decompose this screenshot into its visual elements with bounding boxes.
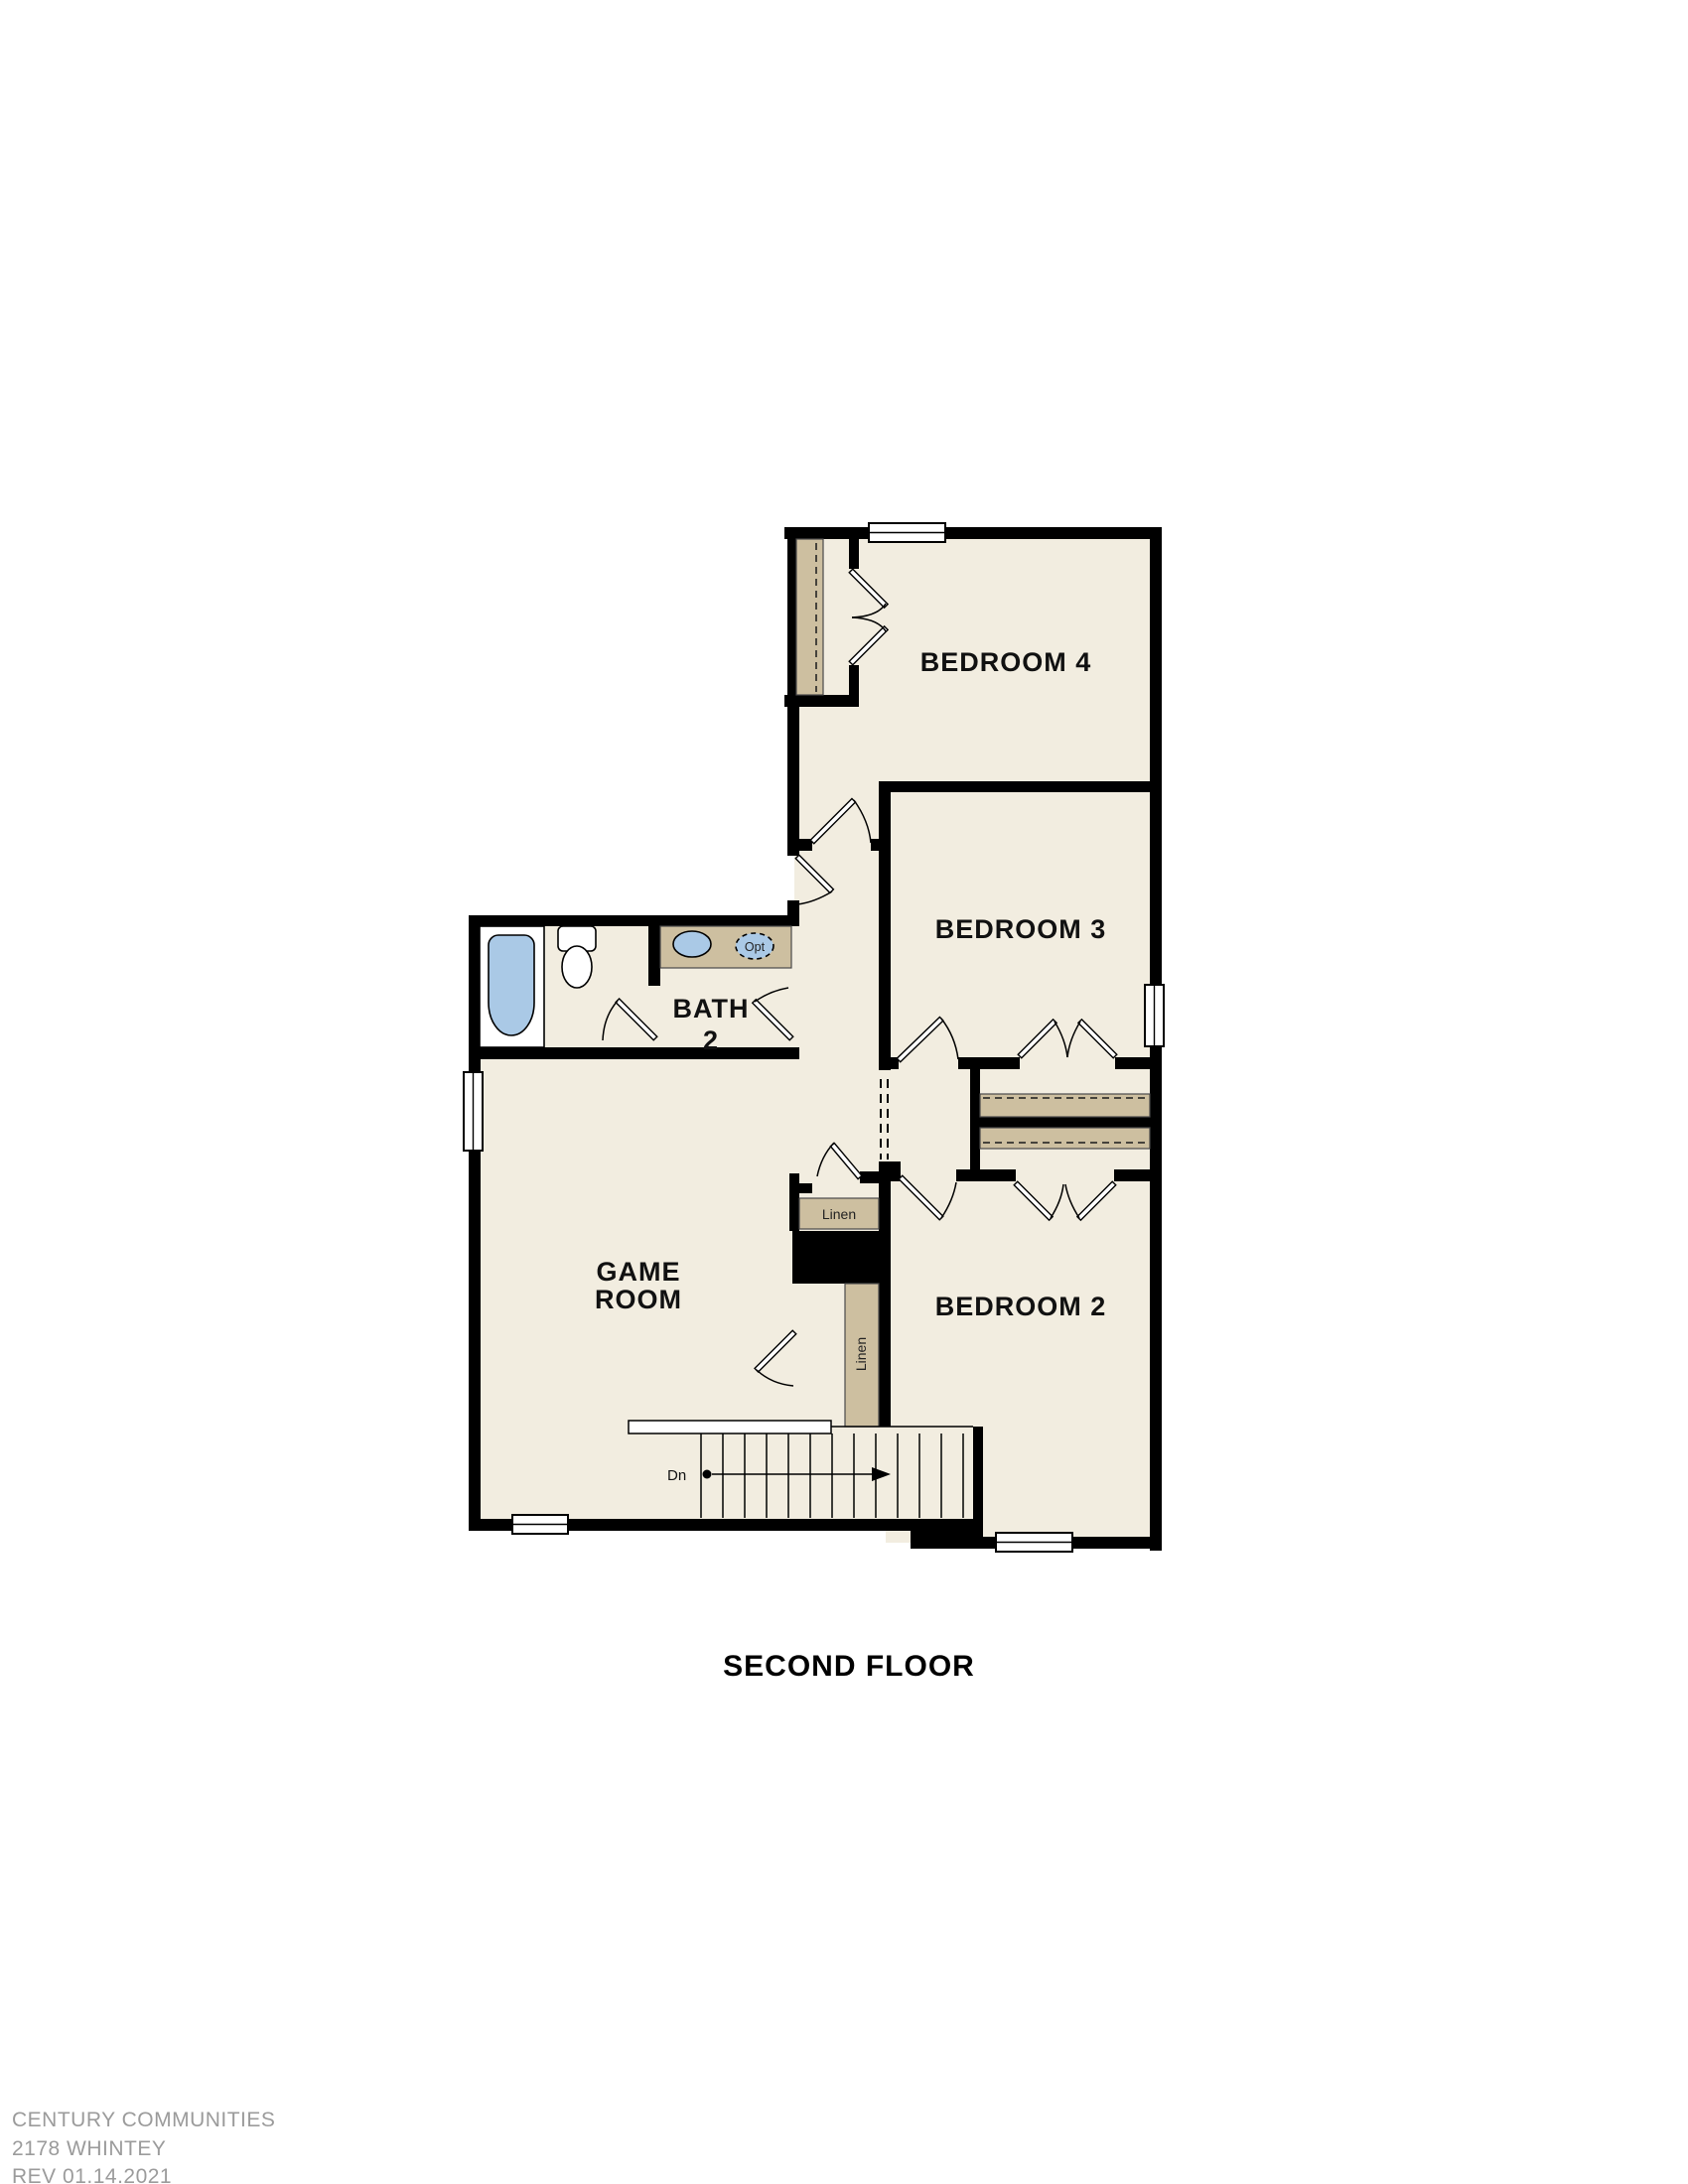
wall-linen-hinge [860,1171,879,1183]
toilet-bowl-icon [562,946,592,988]
stairs-down-label: Dn [667,1467,686,1484]
window-bedroom3-right [1145,985,1164,1046]
wall-bath-bottom [469,1047,799,1059]
closet-rod-bedroom2 [980,1128,1150,1149]
wall-linen-north [799,1183,812,1193]
wall-bath-compartment [648,915,660,986]
wall-bed4closet-stub-top [849,539,859,569]
label-bath2-line2: 2 [703,1025,719,1055]
wall-linen-west [789,1173,799,1231]
footer: CENTURY COMMUNITIES 2178 WHINTEY REV 01.… [12,2109,275,2184]
window-gameroom-bottom [512,1515,568,1534]
closet-rod-bedroom3 [980,1094,1150,1117]
window-bedroom4-top [869,523,945,542]
label-gameroom-line1: GAME [597,1257,681,1287]
label-linen-stair: Linen [853,1337,869,1371]
stair-landing-rail [629,1421,831,1433]
wall-stair-east [973,1427,983,1537]
label-gameroom-line2: ROOM [595,1285,682,1314]
wall-bedroom3-south-c [1115,1057,1162,1069]
wall-top [784,527,1162,539]
wall-bed4closet-stub-bottom [849,665,859,698]
plan-title: SECOND FLOOR [723,1650,975,1683]
floor-plan-drawing: Opt Dn BEDROOM 4 BEDROOM 3 BEDROOM 2 [0,0,1688,2184]
label-bath2-line1: BATH [673,994,750,1024]
wall-bed4closet-bottom [784,695,859,707]
footer-revision: REV 01.14.2021 [12,2165,172,2184]
footer-plan-name: 2178 WHINTEY [12,2137,166,2160]
wall-closet-divider [980,1117,1150,1128]
label-bedroom2: BEDROOM 2 [935,1292,1107,1321]
chase-block [792,1231,879,1284]
floor-plan-page: Opt Dn BEDROOM 4 BEDROOM 3 BEDROOM 2 [0,0,1688,2184]
label-linen-hall: Linen [822,1206,856,1222]
sink-icon [673,931,711,957]
wall-bedroom3-south-b [958,1057,1020,1069]
stairs-start-dot [703,1470,712,1479]
wall-bath-top [469,915,799,926]
label-bedroom4: BEDROOM 4 [920,647,1092,677]
bedroom4-closet-shelf [796,539,823,695]
wall-bedroom4-3-divider [879,781,1162,792]
window-gameroom-left [464,1072,483,1151]
label-bedroom3: BEDROOM 3 [935,914,1107,944]
wall-bedroom2-north-b [1114,1169,1162,1181]
wall-bedroom2-north-a [956,1169,1016,1181]
wall-bedroom4-south-a [787,839,812,851]
wall-vestibule-corner [879,1161,901,1181]
wall-bedroom3-west [879,781,891,1070]
bathtub-icon [489,935,534,1035]
wall-bedroom2-west [879,1181,891,1427]
window-bedroom2-bottom [996,1533,1072,1552]
footer-builder: CENTURY COMMUNITIES [12,2109,275,2131]
optional-sink-label: Opt [745,940,766,954]
wall-notch [911,1519,983,1549]
floor-gameroom [475,1053,979,1525]
wall-bedroom3-south-a [879,1057,899,1069]
wall-closet-west [970,1069,980,1181]
